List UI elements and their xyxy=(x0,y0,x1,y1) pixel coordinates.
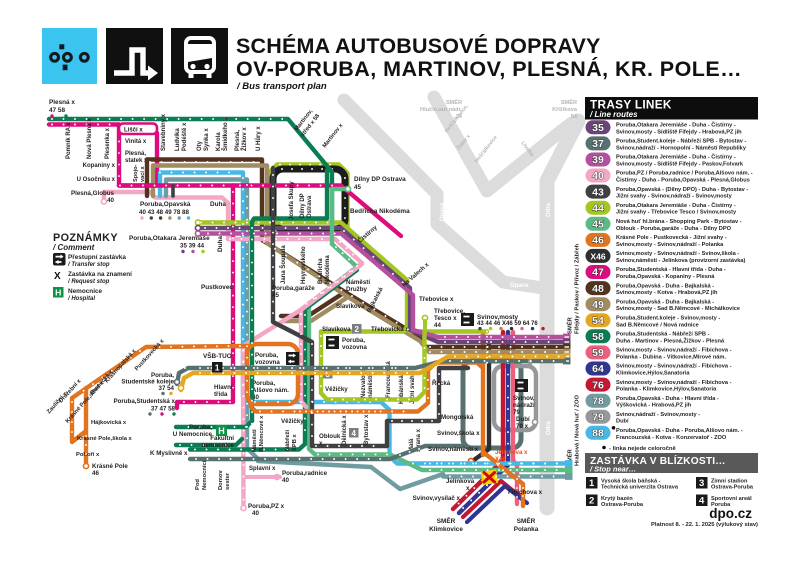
svg-text:79: 79 xyxy=(513,409,520,416)
svg-text:U Osočníku x: U Osočníku x xyxy=(77,177,116,183)
svg-text:59: 59 xyxy=(592,347,604,359)
svg-text:Spojo-: Spojo- xyxy=(133,164,139,182)
svg-text:48: 48 xyxy=(592,283,604,295)
svg-text:37: 37 xyxy=(592,138,604,150)
svg-text:Ludvíka: Ludvíka xyxy=(175,128,181,151)
svg-text:Poruba,Opavská - Duha - Hlavní: Poruba,Opavská - Duha - Hlavní třída - xyxy=(616,396,719,402)
svg-text:Dubí: Dubí xyxy=(516,416,530,423)
svg-text:Technická univerzita Ostrava: Technická univerzita Ostrava xyxy=(601,485,679,491)
svg-text:x: x xyxy=(466,485,470,492)
svg-text:Svinov,nádraží - Svinov,mosty: Svinov,nádraží - Svinov,mosty - xyxy=(616,412,700,418)
svg-text:45: 45 xyxy=(272,292,279,299)
svg-text:Nová Plesná x: Nová Plesná x xyxy=(87,118,93,159)
svg-text:Bedřicha: Bedřicha xyxy=(318,258,324,284)
svg-text:Jelínkova: Jelínkova xyxy=(446,478,475,485)
svg-text:Domov: Domov xyxy=(218,470,224,490)
svg-text:Sad B.Němcové / Nová radnice: Sad B.Němcové / Nová radnice xyxy=(616,322,699,328)
svg-text:Duha - Martinov - Plesná,Žižko: Duha - Martinov - Plesná,Žižkov - Plesná xyxy=(616,336,725,344)
svg-text:Alšovo nám.: Alšovo nám. xyxy=(252,387,289,394)
svg-text:Zimní stadion: Zimní stadion xyxy=(711,478,748,484)
svg-text:Poruba,Opavská - Duha - Bajkal: Poruba,Opavská - Duha - Bajkalská - xyxy=(616,283,714,289)
svg-text:Hlavní: Hlavní xyxy=(214,384,233,391)
svg-text:Svinov,mosty - Kotva - Hrabová: Svinov,mosty - Kotva - Hrabová,PZ jih xyxy=(616,290,718,296)
svg-text:/ Hospital: / Hospital xyxy=(67,296,95,302)
svg-text:Dubí: Dubí xyxy=(616,419,629,425)
svg-text:Poruba,: Poruba, xyxy=(252,380,275,387)
svg-text:Hájkovická x: Hájkovická x xyxy=(91,420,127,426)
svg-text:Poruba,: Poruba, xyxy=(189,424,212,431)
svg-text:Klimkovice: Klimkovice xyxy=(429,526,463,533)
svg-text:Francouzská - Kotva - Konzerva: Francouzská - Kotva - Konzervatoř - ZOO xyxy=(616,435,727,441)
svg-text:Bytostav x: Bytostav x xyxy=(364,414,370,445)
svg-text:Poruba,Studentská - Hlavní tří: Poruba,Studentská - Hlavní třída - Duha … xyxy=(616,267,726,273)
svg-text:46: 46 xyxy=(592,235,604,247)
svg-text:- linka nejede celoročně: - linka nejede celoročně xyxy=(609,446,677,452)
svg-text:35 39 44: 35 39 44 xyxy=(180,243,205,250)
svg-text:Krytý bazén: Krytý bazén xyxy=(601,496,633,502)
svg-text:statek x: statek x xyxy=(125,158,148,164)
svg-text:Josefa Skupy: Josefa Skupy xyxy=(289,181,295,220)
svg-text:/ Transfer stop: / Transfer stop xyxy=(67,262,110,268)
svg-text:Poruba,Opavská: Poruba,Opavská xyxy=(140,201,191,208)
svg-text:Poruba,Opavská - Duha - Poruba: Poruba,Opavská - Duha - Poruba,Alšovo ná… xyxy=(616,428,743,434)
svg-text:Nikodéma: Nikodéma xyxy=(325,255,331,284)
svg-text:Jižní svahy - Třebovice Tesco: Jižní svahy - Třebovice Tesco / Svinov,m… xyxy=(616,210,737,216)
svg-text:44: 44 xyxy=(434,322,441,329)
svg-text:40 43 48 49 78 88: 40 43 48 49 78 88 xyxy=(139,209,189,216)
svg-text:Vysoká škola báňská -: Vysoká škola báňská - xyxy=(601,478,661,484)
svg-text:Plesná,: Plesná, xyxy=(125,151,146,157)
svg-text:Poruba,Student.koleje - Svinov: Poruba,Student.koleje - Svinov,mosty - xyxy=(616,316,720,322)
svg-text:47 58: 47 58 xyxy=(49,107,65,114)
svg-text:/ Line routes: / Line routes xyxy=(589,110,638,119)
svg-text:54: 54 xyxy=(571,114,578,120)
svg-text:40: 40 xyxy=(592,170,604,182)
svg-text:Oty: Oty xyxy=(197,140,203,151)
svg-text:B.Němcové x: B.Němcové x xyxy=(259,415,265,452)
svg-text:Poruba,Studentská x: Poruba,Studentská x xyxy=(113,398,175,405)
svg-text:46: 46 xyxy=(92,470,99,477)
svg-text:Svinov,náměstí - Jelínkova (pr: Svinov,náměstí - Jelínkova (provizorní z… xyxy=(616,258,745,264)
svg-text:Řecká: Řecká xyxy=(432,379,451,387)
svg-text:nemocnice: nemocnice xyxy=(202,442,235,449)
svg-text:Polanka - Klimkovice,Hýlov,San: Polanka - Klimkovice,Hýlov,Sanatoria xyxy=(616,387,717,393)
svg-text:/ Bus transport plan: / Bus transport plan xyxy=(236,81,327,92)
svg-text:37 47 58: 37 47 58 xyxy=(151,406,176,413)
svg-text:SMĚR: SMĚR xyxy=(517,516,536,525)
svg-text:Třebovická x: Třebovická x xyxy=(371,326,409,333)
svg-text:Jelínkova x: Jelínkova x xyxy=(495,450,528,456)
svg-text:Duha: Duha xyxy=(210,201,226,208)
svg-text:54: 54 xyxy=(592,315,604,327)
svg-text:Ostrava-Poruba: Ostrava-Poruba xyxy=(601,502,644,508)
svg-text:Svinov,mosty - Svinov,nádraží: Svinov,mosty - Svinov,nádraží - Fibichov… xyxy=(616,380,732,386)
svg-text:Fibichova x: Fibichova x xyxy=(508,489,543,496)
svg-text:64: 64 xyxy=(592,363,604,375)
svg-text:Heyrovského: Heyrovského xyxy=(301,246,307,284)
svg-text:Kopaniny x: Kopaniny x xyxy=(83,163,116,169)
svg-text:Duha: Duha xyxy=(217,236,224,252)
svg-text:Klimkovice,Hýlov,Sanatoria: Klimkovice,Hýlov,Sanatoria xyxy=(616,371,690,377)
svg-text:Sportovní areál: Sportovní areál xyxy=(711,496,752,502)
svg-text:vozovna: vozovna xyxy=(342,344,367,351)
svg-text:Poruba,: Poruba, xyxy=(342,337,365,344)
svg-text:Polanka: Polanka xyxy=(514,526,539,533)
svg-text:Poruba,Otakara Jeremiáše - Duh: Poruba,Otakara Jeremiáše - Duha - Čistír… xyxy=(616,154,736,161)
svg-text:Platnost 8. - 22. 1. 2025 (výl: Platnost 8. - 22. 1. 2025 (výlukový stav… xyxy=(651,522,758,528)
svg-text:SCHÉMA AUTOBUSOVÉ DOPRAVY: SCHÉMA AUTOBUSOVÉ DOPRAVY xyxy=(236,33,601,58)
svg-text:Pustkovec: Pustkovec xyxy=(201,284,233,291)
svg-text:Poruba,: Poruba, xyxy=(255,352,278,359)
svg-text:Fifejdy / Paskov / Přívoz / Zá: Fifejdy / Paskov / Přívoz / Zábřeh xyxy=(575,243,581,334)
svg-text:Svinov,mosty: Svinov,mosty xyxy=(477,314,519,321)
svg-text:Plesenka x: Plesenka x xyxy=(105,127,111,159)
svg-text:Náměstí: Náměstí xyxy=(346,279,370,286)
svg-text:SPB x: SPB x xyxy=(292,433,298,451)
svg-text:Svinov,nádraží - Hornopolní -: Svinov,nádraží - Hornopolní - Náměstí Re… xyxy=(616,145,747,151)
svg-text:Krásné Pole - Pustkovecká - Ji: Krásné Pole - Pustkovecká - Jižní svahy … xyxy=(616,235,727,241)
svg-text:Poruba,Otakara Jeremiáše - Duh: Poruba,Otakara Jeremiáše - Duha - Čistír… xyxy=(616,202,736,209)
svg-text:H: H xyxy=(55,288,61,298)
svg-text:45: 45 xyxy=(592,219,604,231)
svg-text:X46: X46 xyxy=(590,252,606,262)
svg-text:Poruba,garáže: Poruba,garáže xyxy=(272,285,315,292)
svg-text:2: 2 xyxy=(589,496,594,507)
svg-text:Plesná,: Plesná, xyxy=(235,130,241,151)
svg-text:Poruba,Studentská - Nábřeží SP: Poruba,Studentská - Nábřeží SPB - xyxy=(616,332,710,338)
svg-text:Poruba,PZ / Poruba,radnice / P: Poruba,PZ / Poruba,radnice / Poruba,Alšo… xyxy=(616,171,753,177)
svg-text:Věžičky: Věžičky xyxy=(325,386,348,393)
svg-text:Svinov,náměstí x: Svinov,náměstí x xyxy=(428,446,479,453)
svg-text:Odra: Odra xyxy=(546,202,552,217)
svg-text:Karola: Karola xyxy=(216,132,222,151)
svg-text:47: 47 xyxy=(592,267,604,279)
svg-text:Opava: Opava xyxy=(440,202,446,221)
svg-text:sester: sester xyxy=(225,472,231,490)
svg-text:Pod: Pod xyxy=(195,479,201,490)
svg-text:VŠB-TUO: VŠB-TUO xyxy=(203,351,232,360)
svg-text:SMĚR: SMĚR xyxy=(566,316,574,334)
svg-text:U Hůry x: U Hůry x xyxy=(255,126,262,151)
svg-text:Dílny DP: Dílny DP xyxy=(300,193,306,218)
svg-text:2: 2 xyxy=(354,325,359,334)
svg-text:Liščí x: Liščí x xyxy=(124,128,143,134)
svg-text:Vinitá x: Vinitá x xyxy=(125,139,147,145)
svg-text:Náměstí: Náměstí xyxy=(252,429,258,452)
svg-text:Nemocnice: Nemocnice xyxy=(68,288,103,295)
svg-text:Přestupní zastávka: Přestupní zastávka xyxy=(68,254,126,261)
svg-text:Žižkov x: Žižkov x xyxy=(240,127,248,151)
svg-text:40: 40 xyxy=(282,477,289,484)
svg-text:Dílny DP Ostrava: Dílny DP Ostrava xyxy=(354,176,406,183)
svg-text:37 54: 37 54 xyxy=(159,385,175,392)
svg-text:Synka x: Synka x xyxy=(204,128,210,151)
svg-text:Hrabová / Nová huť / ZOO: Hrabová / Nová huť / ZOO xyxy=(575,394,581,466)
svg-text:Svinov,mosty - Svinov,nádraží: Svinov,mosty - Svinov,nádraží - Polanka xyxy=(616,242,724,248)
svg-text:OV-PORUBA, MARTINOV, PLESNÁ, K: OV-PORUBA, MARTINOV, PLESNÁ, KR. POLE… xyxy=(236,56,742,81)
svg-text:43 44 46 X46 59 64 76: 43 44 46 X46 59 64 76 xyxy=(477,321,538,327)
svg-text:Nová huť hl.brána - Shopping P: Nová huť hl.brána - Shopping Park - Byto… xyxy=(616,219,742,225)
svg-text:Svinov,mosty - Sídliště Fifejd: Svinov,mosty - Sídliště Fifejdy - Paskov… xyxy=(616,162,744,168)
svg-text:40: 40 xyxy=(107,197,114,204)
svg-text:Svinov,mosty - Svinov,nádraží: Svinov,mosty - Svinov,nádraží - Fibichov… xyxy=(616,364,732,370)
svg-text:79: 79 xyxy=(592,411,604,423)
svg-text:Opava: Opava xyxy=(510,283,529,289)
svg-text:nádraží: nádraží xyxy=(513,402,535,409)
svg-text:Poruba,Opavská - (Dílny DPO) -: Poruba,Opavská - (Dílny DPO) - Duha - By… xyxy=(616,187,748,193)
svg-text:x: x xyxy=(319,440,323,447)
svg-text:45: 45 xyxy=(354,184,361,191)
svg-text:Zastávka na znamení: Zastávka na znamení xyxy=(68,271,132,278)
svg-text:88: 88 xyxy=(592,428,604,440)
svg-text:39: 39 xyxy=(592,154,604,166)
svg-text:Plesná,Globus: Plesná,Globus xyxy=(71,190,115,197)
svg-text:Stavebniny x: Stavebniny x xyxy=(161,113,167,151)
svg-text:Věžičky: Věžičky xyxy=(281,418,304,425)
svg-text:Poruba,radnice: Poruba,radnice xyxy=(282,470,328,477)
svg-text:Ostrava: Ostrava xyxy=(307,195,313,218)
svg-text:76: 76 xyxy=(592,379,604,391)
svg-text:4: 4 xyxy=(699,496,705,507)
svg-text:X46: X46 xyxy=(495,457,506,463)
svg-text:58: 58 xyxy=(592,331,604,343)
svg-text:Svinov,vysílač x: Svinov,vysílač x xyxy=(413,495,461,502)
svg-text:vozovna: vozovna xyxy=(255,359,280,366)
svg-text:Plesná x: Plesná x xyxy=(49,99,75,106)
svg-text:Ostrava-Poruba: Ostrava-Poruba xyxy=(711,485,754,491)
svg-text:Slavíkova: Slavíkova xyxy=(336,303,365,310)
svg-text:Fakultní: Fakultní xyxy=(210,435,234,442)
svg-text:40: 40 xyxy=(252,510,259,517)
svg-text:43: 43 xyxy=(592,186,604,198)
svg-text:Svinov,mosty - Sídliště Fifejd: Svinov,mosty - Sídliště Fifejdy - Hrabov… xyxy=(616,129,742,135)
svg-text:SMĚR: SMĚR xyxy=(446,98,462,106)
svg-text:Polanka - Dubina - Vítkovice,M: Polanka - Dubina - Vítkovice,Mírové nám. xyxy=(616,354,726,360)
svg-text:3: 3 xyxy=(699,478,704,489)
svg-text:U Nemocnice: U Nemocnice xyxy=(173,431,213,438)
svg-text:Poruba,Student.koleje - Nábřež: Poruba,Student.koleje - Nábřeží SPB - By… xyxy=(616,139,747,145)
svg-text:49: 49 xyxy=(592,299,604,311)
svg-text:Poruba,Opavská - Kopaniny - Pl: Poruba,Opavská - Kopaniny - Plesná xyxy=(616,274,715,280)
svg-text:Krásné Pole,škola x: Krásné Pole,škola x xyxy=(77,436,133,442)
svg-text:Poruba,PZ x: Poruba,PZ x xyxy=(248,503,285,510)
svg-text:Nábřeží: Nábřeží xyxy=(285,430,291,451)
svg-text:X: X xyxy=(54,271,61,282)
svg-text:Krásné Pole: Krásné Pole xyxy=(92,463,128,470)
svg-text:1: 1 xyxy=(589,478,595,489)
svg-text:Bedřicha Nikodéma: Bedřicha Nikodéma xyxy=(350,208,410,215)
svg-text:dpo.cz: dpo.cz xyxy=(709,506,752,521)
svg-text:Křižíkova: Křižíkova xyxy=(552,107,578,113)
svg-text:náměstí: náměstí xyxy=(368,375,374,398)
svg-text:35: 35 xyxy=(592,122,604,134)
svg-text:Družby: Družby xyxy=(346,286,368,293)
svg-text:79 x: 79 x xyxy=(516,423,529,430)
svg-text:Svinov,mosty - Svinov,nádraží: Svinov,mosty - Svinov,nádraží - Svinov,š… xyxy=(616,251,739,257)
svg-text:Pohoří x: Pohoří x xyxy=(76,452,100,458)
svg-text:SMĚR: SMĚR xyxy=(561,98,577,106)
svg-text:Slavíkova: Slavíkova xyxy=(322,326,351,333)
svg-text:Mongolská: Mongolská xyxy=(441,414,474,421)
svg-text:1: 1 xyxy=(215,363,220,373)
svg-text:Svinov,mosty - Svinov,nádraží: Svinov,mosty - Svinov,nádraží - Fibichov… xyxy=(616,348,732,354)
svg-text:Hlučín,aut.nádr.: Hlučín,aut.nádr. xyxy=(420,107,462,113)
svg-text:Odra: Odra xyxy=(546,420,552,435)
svg-text:Tesco x: Tesco x xyxy=(434,315,457,322)
svg-text:Třebovice x: Třebovice x xyxy=(419,296,454,303)
svg-text:Oblouk - Poruba,garáže - Duha: Oblouk - Poruba,garáže - Duha - Dílny DP… xyxy=(616,226,732,232)
svg-text:Pomník RA x: Pomník RA x xyxy=(66,122,72,159)
svg-text:Svinov,: Svinov, xyxy=(513,395,535,402)
svg-text:78: 78 xyxy=(592,395,604,407)
svg-text:Nemocnicí: Nemocnicí xyxy=(202,460,208,490)
svg-text:Svinov,mosty - Sad B.Němcové -: Svinov,mosty - Sad B.Němcové - Michálkov… xyxy=(616,306,740,312)
svg-text:Jižní svahy - Svinov,nádraží -: Jižní svahy - Svinov,nádraží - Svinov,mo… xyxy=(616,194,733,200)
svg-text:Jana Šoupala: Jana Šoupala xyxy=(279,245,287,284)
svg-text:Čistírny - Duha - Poruba,Opavs: Čistírny - Duha - Poruba,Opavská - Plesn… xyxy=(616,177,750,184)
svg-text:SMĚR: SMĚR xyxy=(437,516,456,525)
svg-text:Oblouk: Oblouk xyxy=(319,433,341,440)
svg-text:Poruba,Opavská - Duha - Bajkal: Poruba,Opavská - Duha - Bajkalská - xyxy=(616,299,714,305)
svg-text:/ Stop near…: / Stop near… xyxy=(589,465,636,474)
svg-text:Splavní x: Splavní x xyxy=(249,466,276,472)
svg-text:4: 4 xyxy=(351,429,356,438)
svg-text:Podéště x: Podéště x xyxy=(182,122,188,151)
svg-text:44: 44 xyxy=(592,202,604,214)
svg-text:Třebovice,: Třebovice, xyxy=(434,308,465,315)
svg-text:Šmídkeho x: Šmídkeho x xyxy=(221,117,229,151)
svg-text:Poruba,Otakara Jeremiáše - Duh: Poruba,Otakara Jeremiáše - Duha - Čistír… xyxy=(616,122,736,129)
svg-text:/ Request stop: / Request stop xyxy=(67,279,110,285)
svg-text:Výškovická - Hrabová,PZ jih: Výškovická - Hrabová,PZ jih xyxy=(616,403,692,409)
svg-text:K Myslivně x: K Myslivně x xyxy=(150,450,188,457)
svg-text:Dělnická x: Dělnická x xyxy=(342,415,348,445)
svg-text:třída: třída xyxy=(214,391,228,398)
svg-text:Svinov,škola x: Svinov,škola x xyxy=(437,430,480,437)
svg-text:/ Comment: / Comment xyxy=(52,243,95,252)
